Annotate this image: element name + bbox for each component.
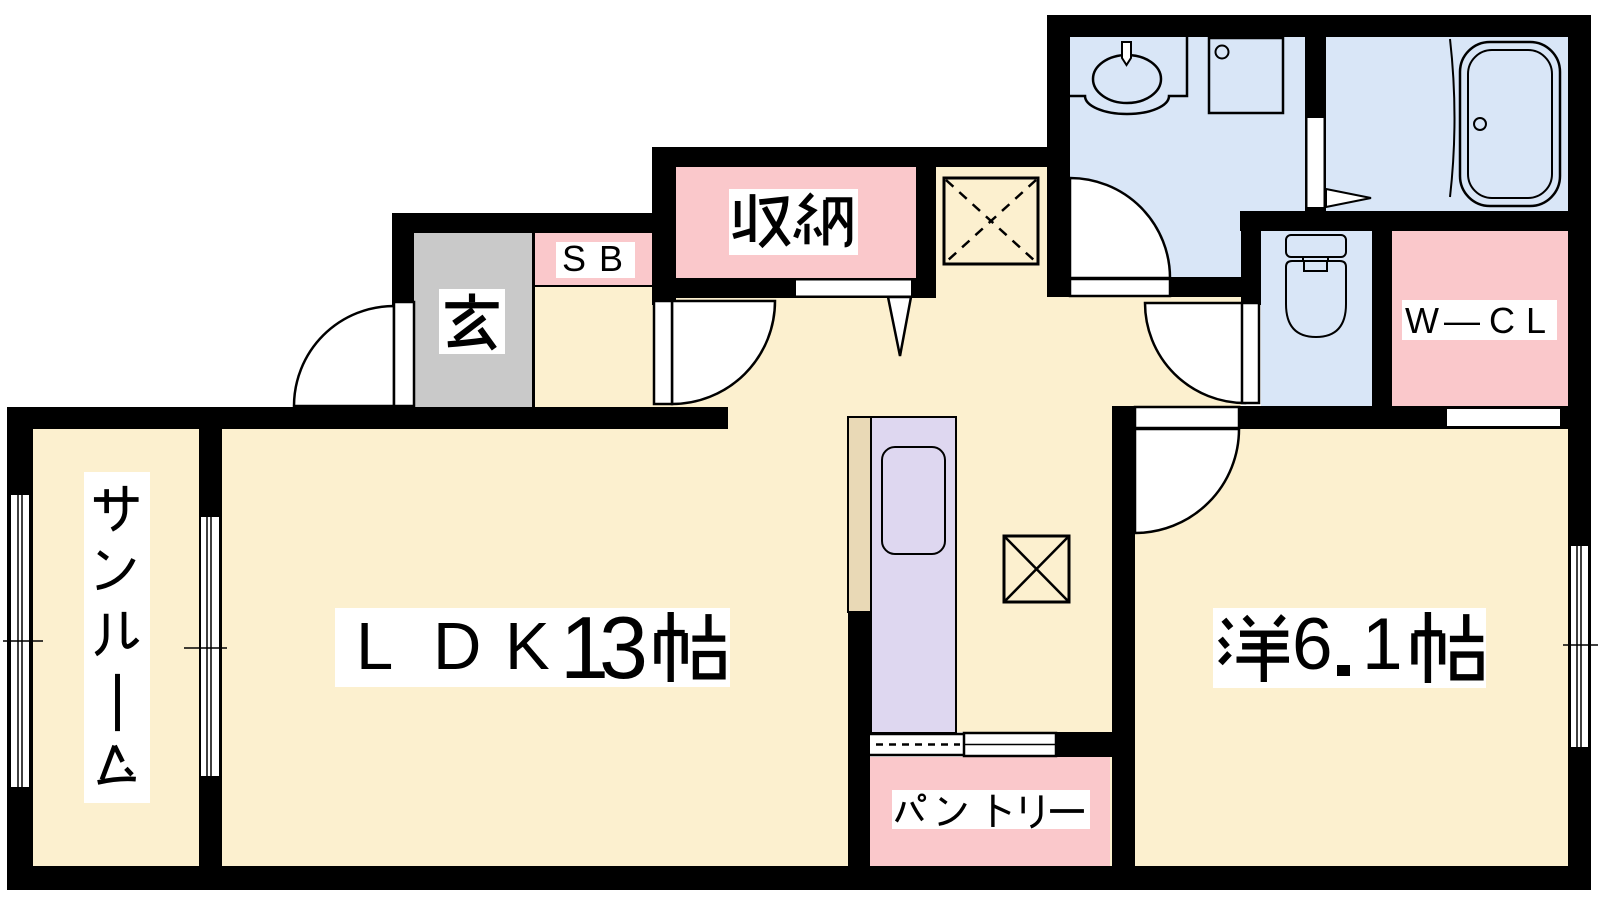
svg-text:3: 3 <box>599 598 648 697</box>
svg-text:L: L <box>1526 300 1546 341</box>
svg-text:B: B <box>599 238 623 279</box>
svg-text:S: S <box>562 238 586 279</box>
svg-text:W: W <box>1405 300 1439 341</box>
svg-text:6: 6 <box>1292 604 1333 685</box>
svg-text:1: 1 <box>1362 604 1403 685</box>
svg-text:K: K <box>505 609 550 684</box>
svg-text:C: C <box>1489 300 1515 341</box>
svg-text:D: D <box>433 609 481 684</box>
svg-text:—: — <box>1444 300 1480 341</box>
svg-text:L: L <box>356 609 393 684</box>
